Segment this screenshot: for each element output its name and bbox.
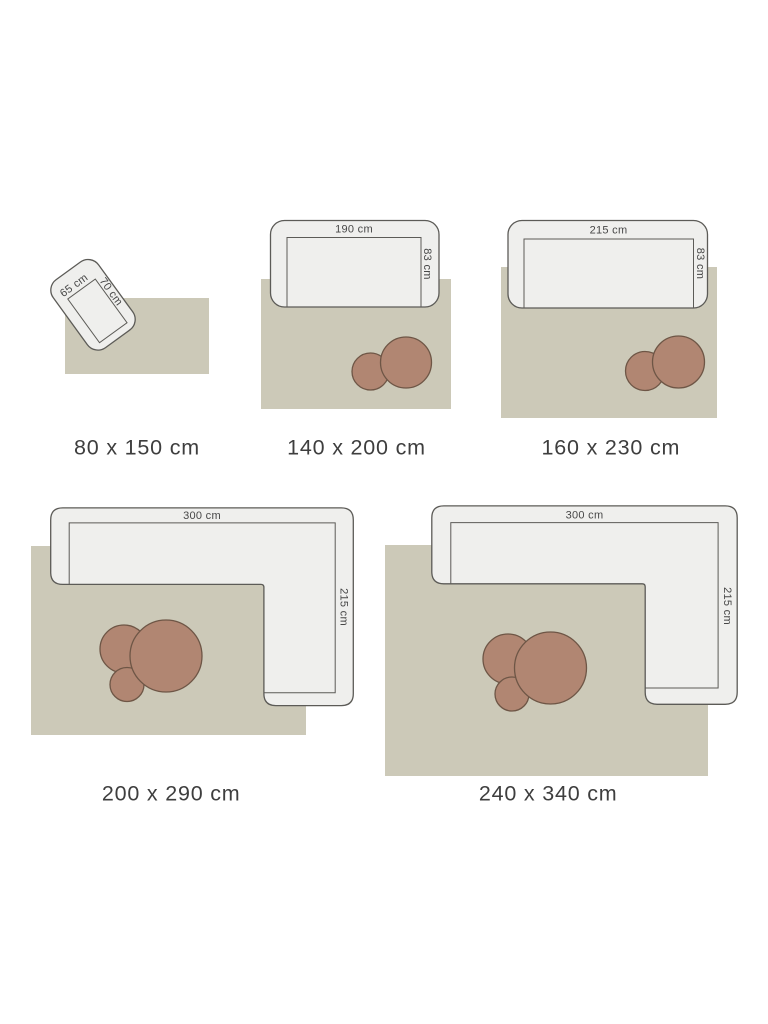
svg-text:80 x 150 cm: 80 x 150 cm	[74, 435, 200, 459]
svg-text:83 cm: 83 cm	[421, 248, 433, 279]
svg-text:215 cm: 215 cm	[590, 225, 628, 237]
svg-text:215 cm: 215 cm	[338, 588, 350, 626]
svg-text:300 cm: 300 cm	[183, 510, 221, 522]
svg-text:160 x 230 cm: 160 x 230 cm	[542, 435, 681, 459]
svg-text:140 x 200 cm: 140 x 200 cm	[287, 435, 426, 459]
svg-text:215 cm: 215 cm	[721, 587, 733, 625]
svg-text:83 cm: 83 cm	[694, 248, 706, 279]
svg-text:300 cm: 300 cm	[566, 509, 604, 521]
svg-text:190 cm: 190 cm	[335, 224, 373, 236]
svg-text:200 x 290 cm: 200 x 290 cm	[102, 782, 241, 806]
svg-text:240 x 340 cm: 240 x 340 cm	[479, 782, 618, 806]
